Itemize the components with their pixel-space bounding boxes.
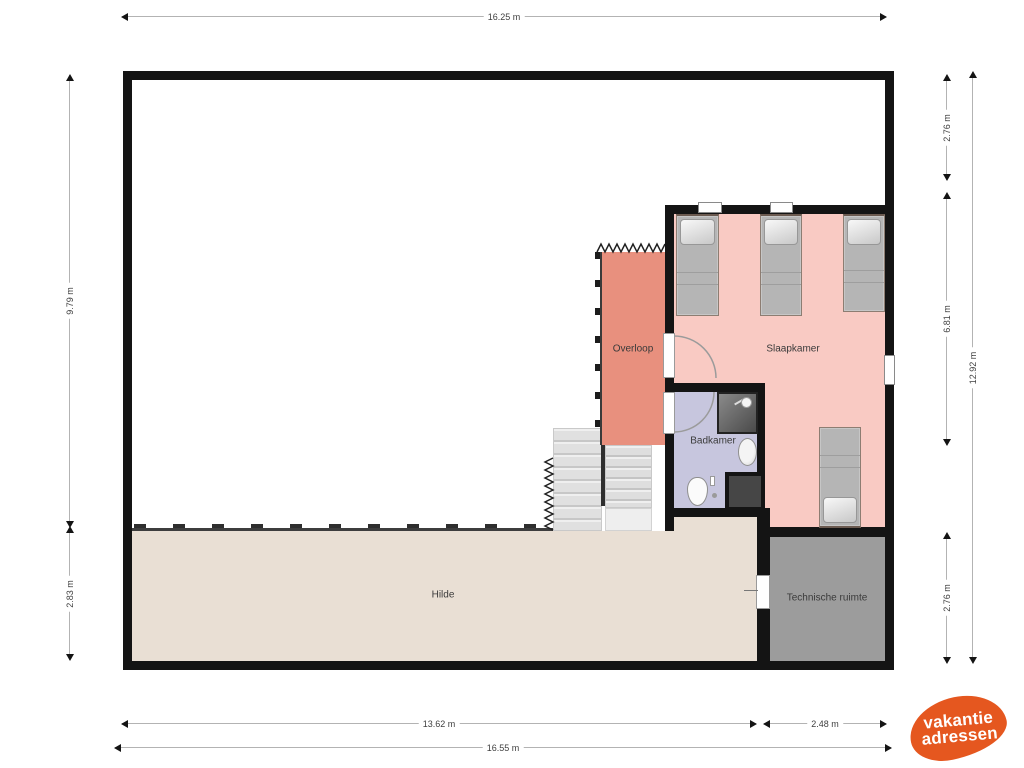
floorplan-canvas: 16.25 m 9.79 m 2.83 m 2.76 m 6.81 m 2.76… — [0, 0, 1024, 768]
logo-text: vakantie adressen — [920, 709, 999, 747]
shower-icon — [717, 392, 758, 434]
pillow — [680, 219, 715, 245]
blanket-fold — [761, 272, 801, 285]
blanket-fold — [677, 272, 718, 285]
pillow — [823, 497, 857, 523]
bed-icon — [819, 427, 861, 528]
room-label-slaapkamer: Slaapkamer — [766, 344, 819, 355]
bed-icon — [676, 214, 719, 316]
toilet-drain — [712, 493, 717, 498]
pillow — [847, 219, 881, 245]
room-label-overloop: Overloop — [613, 344, 654, 355]
pillow — [764, 219, 798, 245]
brand-logo: vakantie adressen — [903, 695, 1015, 763]
door-swing-icon — [0, 0, 1024, 768]
bed-icon — [843, 214, 885, 312]
toilet-cistern — [710, 476, 715, 486]
sink-icon — [738, 438, 757, 466]
bed-icon — [760, 214, 802, 316]
room-label-badkamer: Badkamer — [690, 436, 736, 447]
blanket-fold — [844, 270, 884, 283]
blanket-fold — [820, 455, 860, 468]
room-label-technische-ruimte: Technische ruimte — [787, 593, 868, 604]
room-label-hilde: Hilde — [432, 590, 455, 601]
